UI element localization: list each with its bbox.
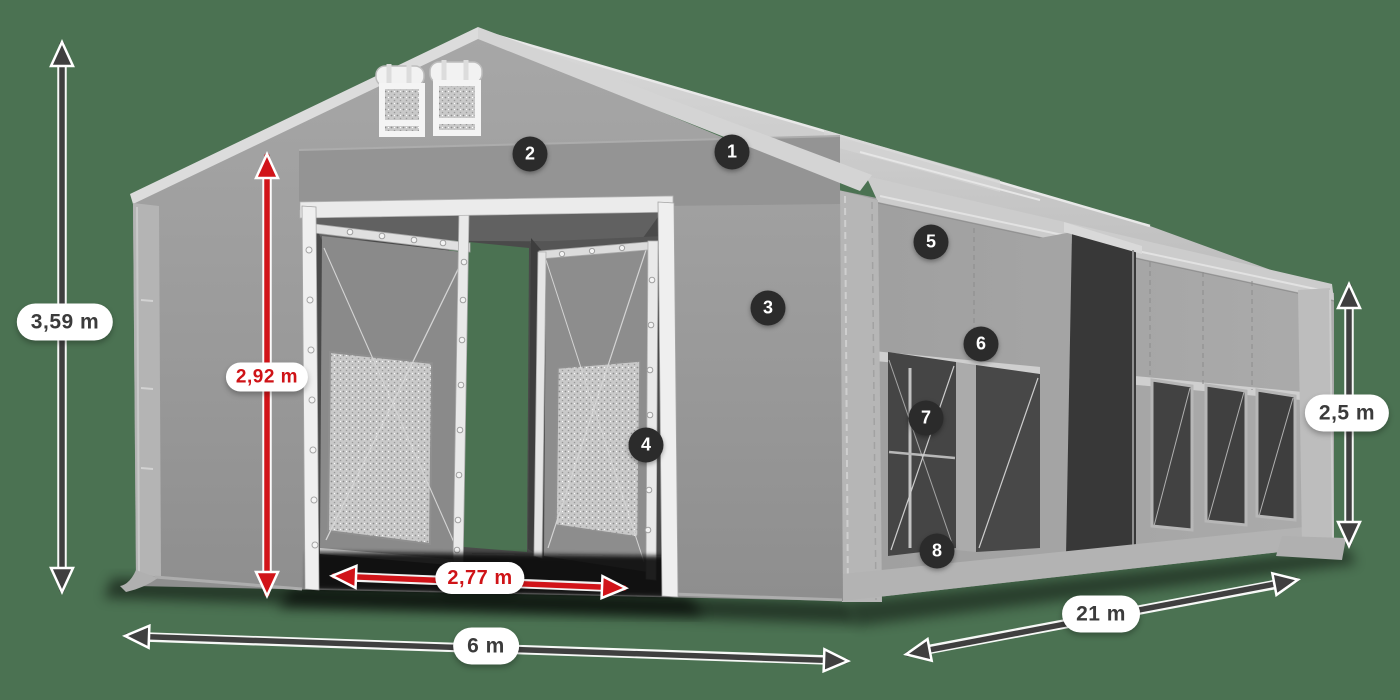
feature-badge-8[interactable]: 8 <box>920 534 955 569</box>
door-width-label: 2,77 m <box>435 562 524 594</box>
feature-badge-6[interactable]: 6 <box>964 327 999 362</box>
feature-badge-2[interactable]: 2 <box>513 137 548 172</box>
side-windows <box>1152 380 1295 530</box>
feature-badge-5[interactable]: 5 <box>914 225 949 260</box>
length-label: 21 m <box>1062 596 1140 633</box>
door-height-label: 2,92 m <box>226 363 308 392</box>
tent-illustration <box>0 0 1400 700</box>
feature-badge-7[interactable]: 7 <box>909 401 944 436</box>
near-door-gate <box>315 212 470 568</box>
side-height-label: 2,5 m <box>1305 395 1389 432</box>
feature-badge-4[interactable]: 4 <box>629 428 664 463</box>
total-height-label: 3,59 m <box>17 304 113 341</box>
front-entrance <box>300 196 678 597</box>
tent-dimension-diagram: 3,59 m 2,92 m 2,77 m 6 m 21 m 2,5 m 1 2 … <box>0 0 1400 700</box>
front-width-label: 6 m <box>453 628 519 665</box>
far-door-gate <box>528 238 659 580</box>
sliding-door-opening <box>1066 232 1136 556</box>
feature-badge-3[interactable]: 3 <box>751 291 786 326</box>
feature-badge-1[interactable]: 1 <box>715 135 750 170</box>
side-opening-2 <box>976 365 1040 552</box>
